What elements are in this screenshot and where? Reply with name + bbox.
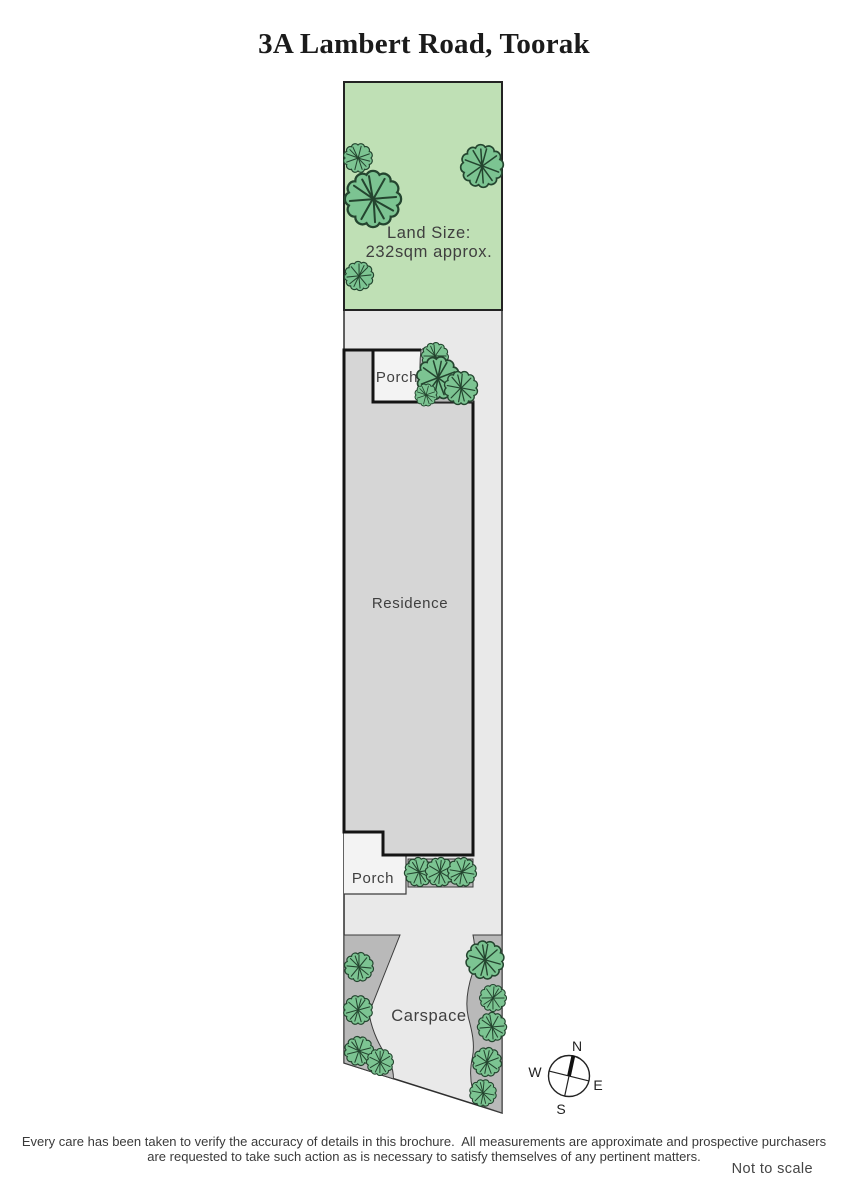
compass-south-line [565, 1076, 569, 1097]
compass-rose: N W E S [528, 1038, 602, 1117]
porch-top-label: Porch [376, 369, 418, 386]
disclaimer: Every care has been taken to verify the … [0, 1134, 848, 1164]
disclaimer-line1: Every care has been taken to verify the … [0, 1134, 848, 1149]
tree-icon [415, 384, 437, 406]
compass-north-label: N [572, 1038, 582, 1054]
residence-label: Residence [372, 595, 448, 612]
compass-north-needle-icon [569, 1056, 573, 1077]
compass-east-label: E [593, 1077, 602, 1093]
porch-bottom-label: Porch [352, 870, 394, 887]
compass-west-label: W [528, 1064, 542, 1080]
tree-icon [344, 144, 373, 173]
compass-south-label: S [556, 1101, 565, 1117]
site-plan: Land Size: 232sqm approx. Porch Residenc… [0, 0, 848, 1200]
land-size-label-line2: 232sqm approx. [366, 243, 493, 261]
land-size-label-line1: Land Size: [387, 224, 471, 242]
not-to-scale-note: Not to scale [732, 1161, 813, 1177]
disclaimer-line2: are requested to take such action as is … [0, 1149, 848, 1164]
carspace-label: Carspace [391, 1007, 466, 1025]
